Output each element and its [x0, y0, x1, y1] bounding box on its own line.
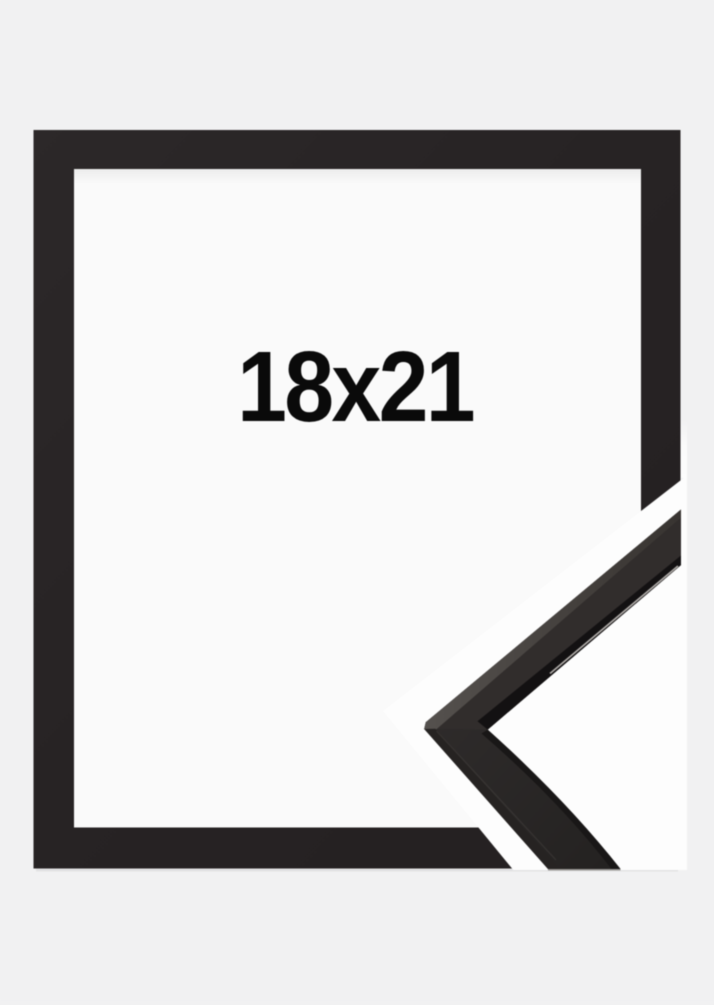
svg-text:18x21: 18x21: [237, 331, 474, 443]
